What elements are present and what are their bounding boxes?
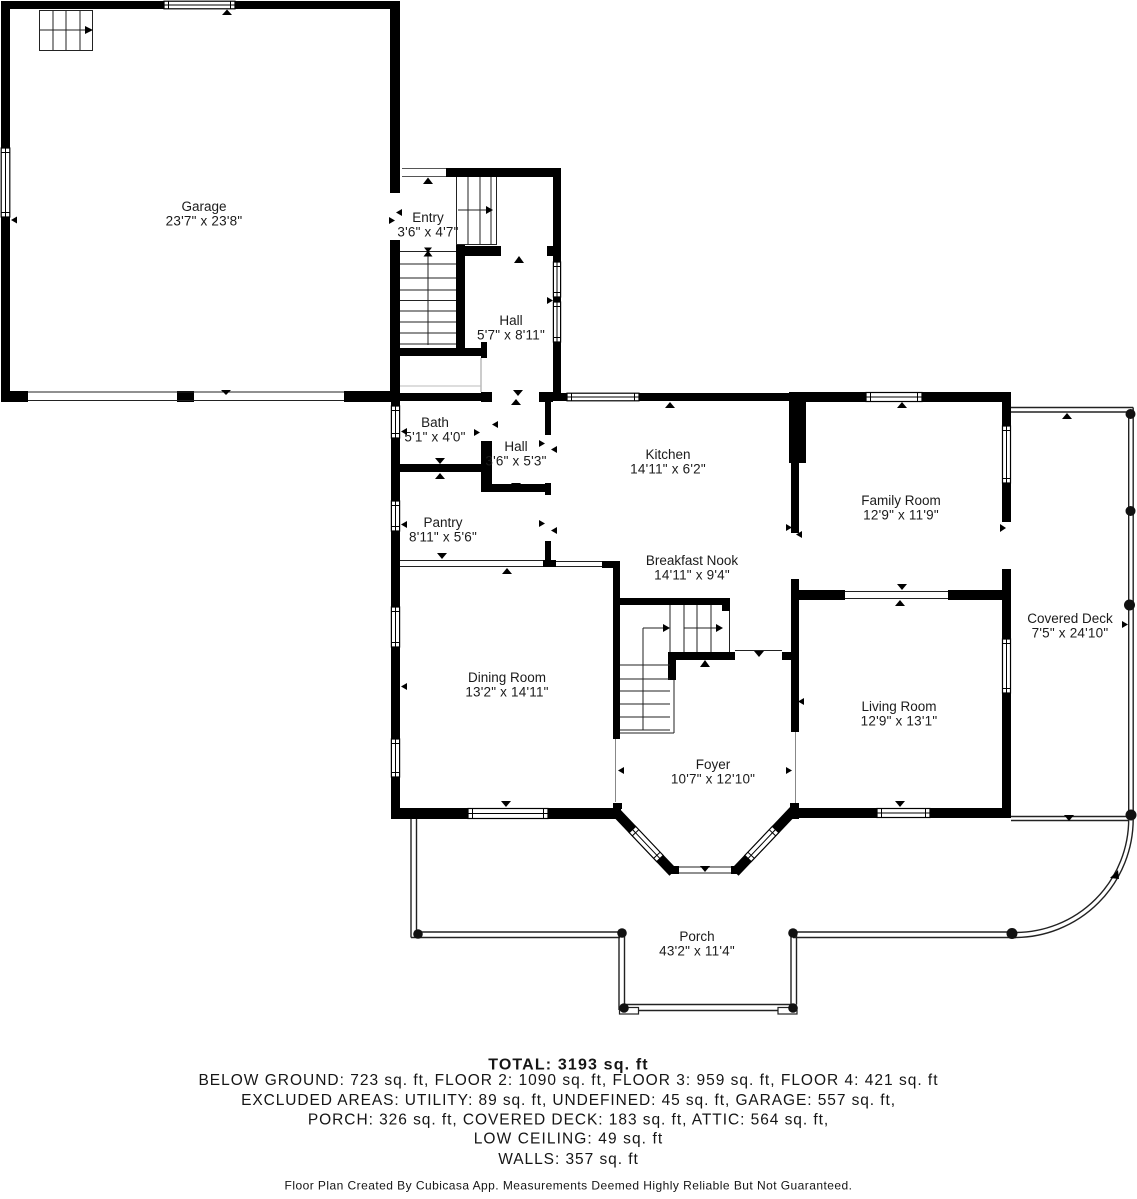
svg-text:Hall: Hall [504,439,527,454]
svg-text:TOTAL: 3193 sq. ft: TOTAL: 3193 sq. ft [488,1057,649,1074]
svg-text:PORCH: 326 sq. ft, COVERED DEC: PORCH: 326 sq. ft, COVERED DECK: 183 sq.… [308,1112,829,1129]
svg-text:EXCLUDED AREAS: UTILITY: 89 sq: EXCLUDED AREAS: UTILITY: 89 sq. ft, UNDE… [241,1092,896,1109]
svg-text:12'9" x 13'1": 12'9" x 13'1" [861,713,938,728]
svg-text:43'2" x 11'4": 43'2" x 11'4" [659,943,735,958]
svg-text:14'11" x 9'4": 14'11" x 9'4" [654,567,730,582]
svg-text:BELOW GROUND: 723 sq. ft, FLOO: BELOW GROUND: 723 sq. ft, FLOOR 2: 1090 … [198,1072,938,1089]
svg-text:Foyer: Foyer [696,757,731,772]
svg-text:Floor Plan Created By Cubicasa: Floor Plan Created By Cubicasa App. Meas… [285,1179,853,1193]
svg-text:3'6" x 4'7": 3'6" x 4'7" [397,224,458,239]
svg-text:Bath: Bath [421,415,449,430]
svg-text:LOW CEILING: 49 sq. ft: LOW CEILING: 49 sq. ft [474,1131,664,1148]
svg-text:5'7" x 8'11": 5'7" x 8'11" [477,327,545,342]
svg-text:Dining Room: Dining Room [468,670,546,685]
svg-text:Pantry: Pantry [423,515,462,530]
svg-text:Porch: Porch [679,929,714,944]
svg-text:13'2" x 14'11": 13'2" x 14'11" [465,684,548,699]
svg-text:Garage: Garage [181,199,226,214]
svg-text:WALLS: 357 sq. ft: WALLS: 357 sq. ft [498,1151,639,1168]
svg-text:12'9" x 11'9": 12'9" x 11'9" [863,507,939,522]
svg-text:23'7" x 23'8": 23'7" x 23'8" [166,213,243,228]
svg-text:Kitchen: Kitchen [645,447,690,462]
svg-text:10'7" x 12'10": 10'7" x 12'10" [671,771,755,786]
svg-text:Entry: Entry [412,210,444,225]
svg-text:Covered Deck: Covered Deck [1027,611,1113,626]
svg-text:14'11" x 6'2": 14'11" x 6'2" [630,461,706,476]
svg-text:Living Room: Living Room [861,699,936,714]
svg-text:Hall: Hall [499,313,522,328]
svg-text:8'11" x 5'6": 8'11" x 5'6" [409,529,477,544]
svg-text:Breakfast Nook: Breakfast Nook [646,553,739,568]
svg-text:Family Room: Family Room [861,493,941,508]
svg-text:7'5" x 24'10": 7'5" x 24'10" [1032,625,1109,640]
svg-text:3'6" x 5'3": 3'6" x 5'3" [485,453,546,468]
svg-text:5'1" x 4'0": 5'1" x 4'0" [404,429,465,444]
